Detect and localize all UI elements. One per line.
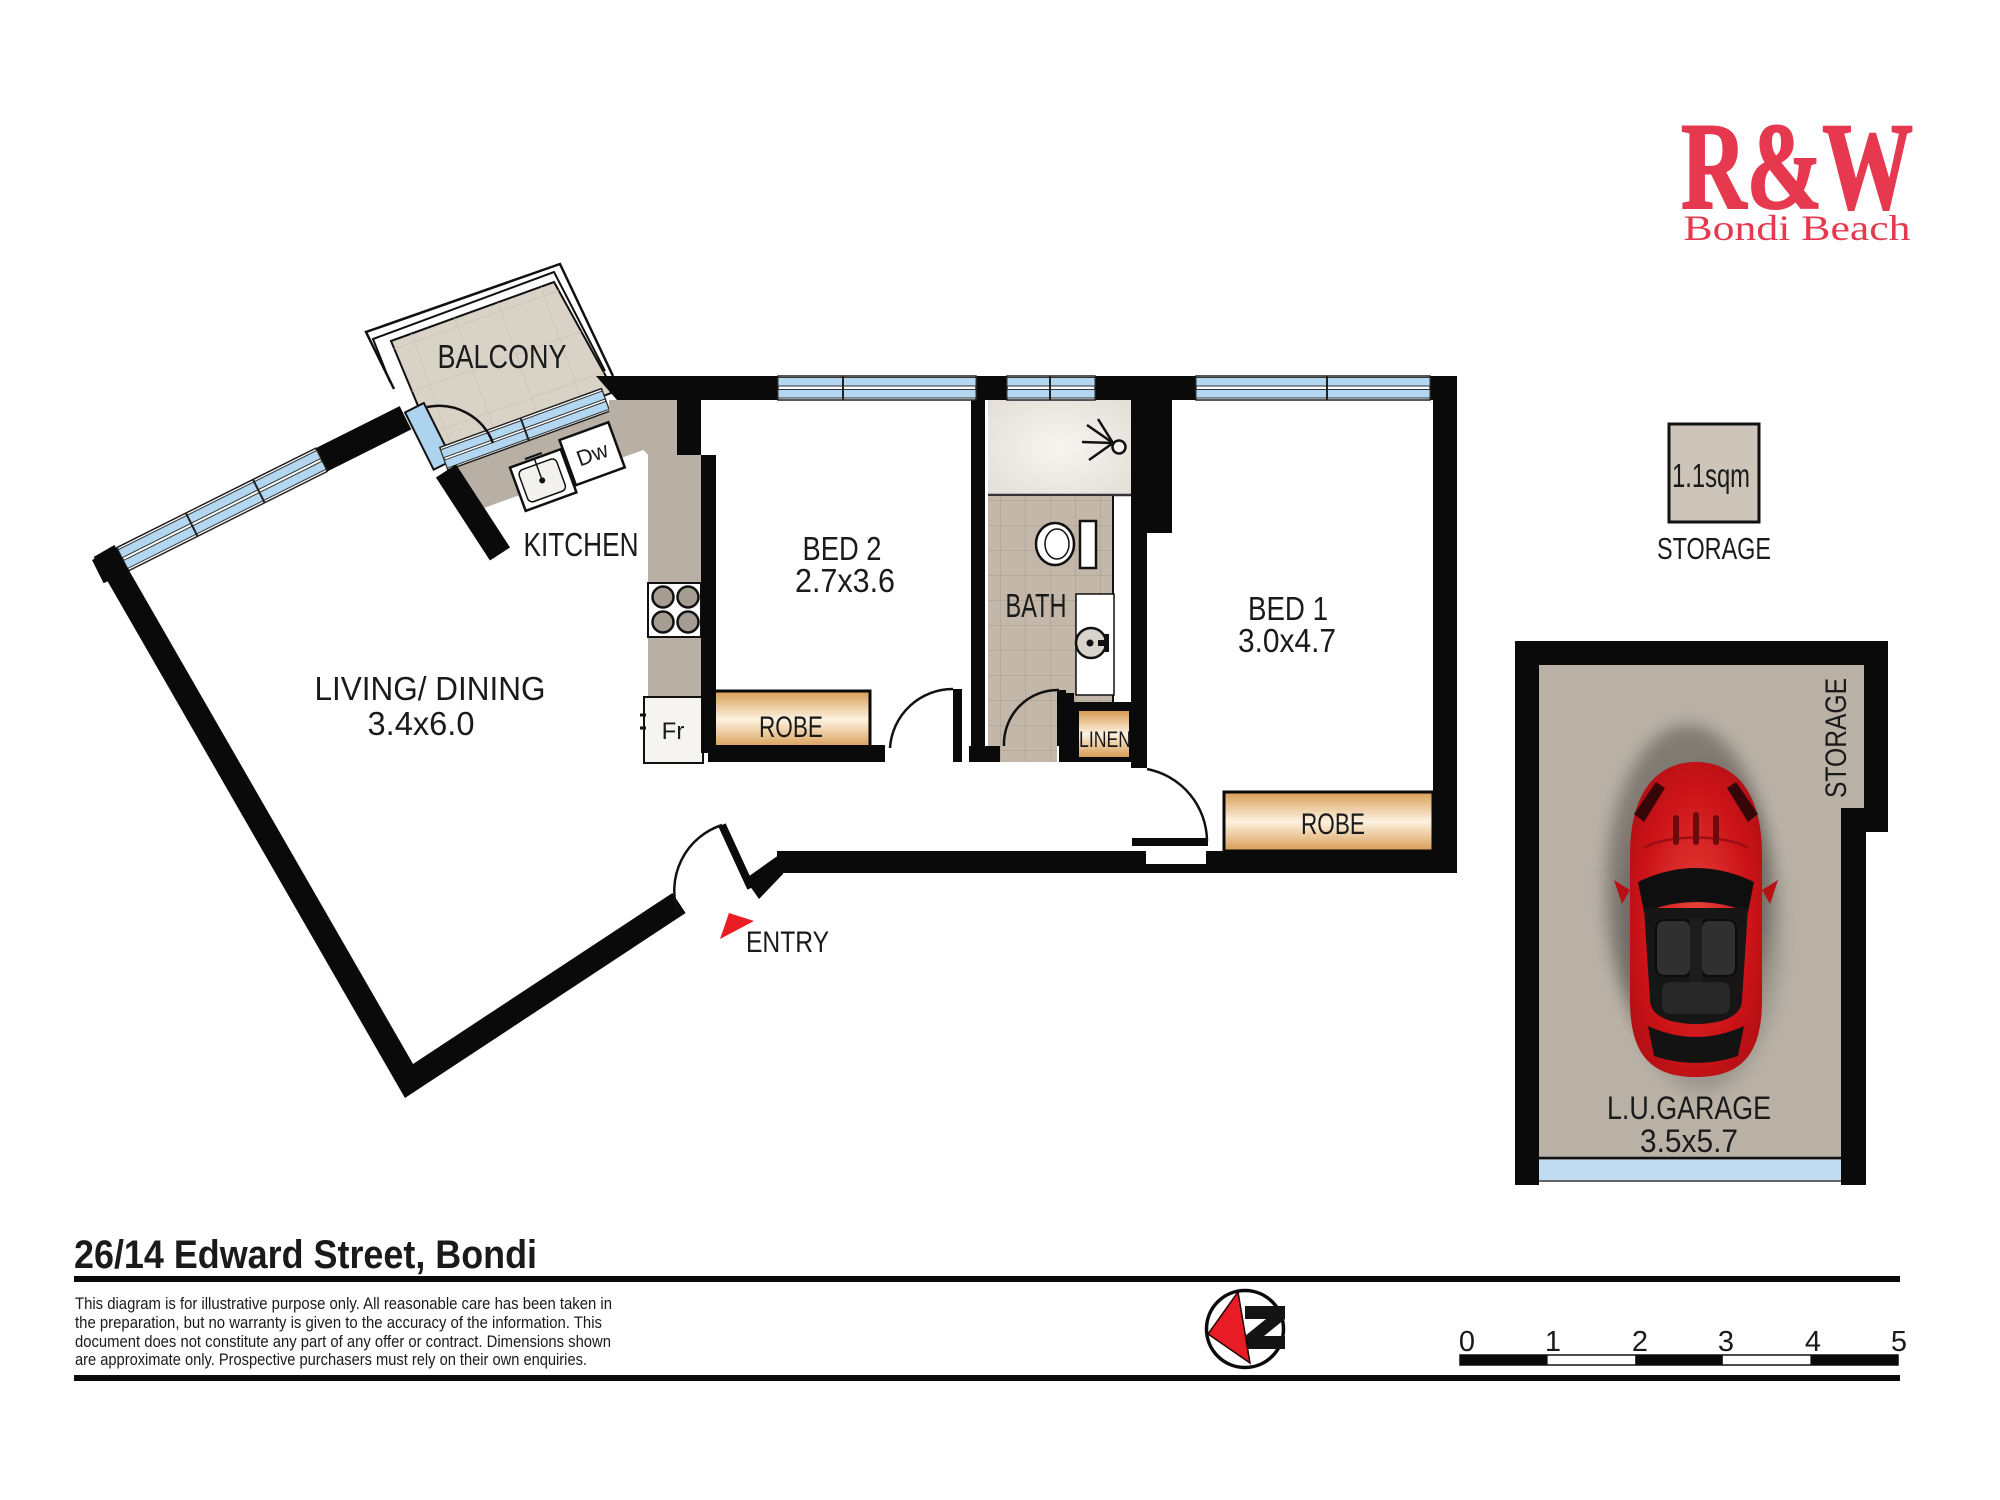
- svg-text:document does not constitute a: document does not constitute any part of…: [75, 1333, 611, 1351]
- svg-text:5: 5: [1891, 1326, 1907, 1358]
- svg-text:1: 1: [1545, 1326, 1561, 1358]
- svg-text:Bondi Beach: Bondi Beach: [1684, 208, 1911, 248]
- svg-text:0: 0: [1459, 1326, 1475, 1358]
- svg-text:3: 3: [1718, 1326, 1734, 1358]
- svg-text:ROBE: ROBE: [1301, 808, 1365, 841]
- svg-text:L.U.GARAGE: L.U.GARAGE: [1607, 1090, 1771, 1126]
- svg-text:STORAGE: STORAGE: [1657, 531, 1771, 566]
- svg-text:LINEN: LINEN: [1079, 727, 1131, 752]
- svg-text:2: 2: [1632, 1326, 1648, 1358]
- svg-text:ENTRY: ENTRY: [746, 926, 829, 959]
- svg-text:STORAGE: STORAGE: [1820, 678, 1853, 798]
- svg-text:KITCHEN: KITCHEN: [524, 526, 639, 563]
- svg-text:This diagram is for illustrati: This diagram is for illustrative purpose…: [75, 1295, 612, 1313]
- svg-text:BATH: BATH: [1006, 587, 1067, 624]
- svg-text:are approximate only. Prospect: are approximate only. Prospective purcha…: [75, 1351, 587, 1369]
- svg-text:BALCONY: BALCONY: [438, 338, 567, 375]
- svg-text:26/14 Edward Street, Bondi: 26/14 Edward Street, Bondi: [74, 1233, 537, 1277]
- svg-text:LIVING/ DINING: LIVING/ DINING: [315, 670, 546, 707]
- svg-text:ROBE: ROBE: [759, 711, 823, 744]
- svg-text:3.0x4.7: 3.0x4.7: [1238, 622, 1336, 659]
- svg-text:3.4x6.0: 3.4x6.0: [368, 705, 475, 742]
- svg-text:Fr: Fr: [662, 718, 685, 745]
- svg-text:the preparation, but no warran: the preparation, but no warranty is give…: [75, 1314, 602, 1332]
- svg-text:3.5x5.7: 3.5x5.7: [1640, 1123, 1738, 1159]
- svg-text:1.1sqm: 1.1sqm: [1672, 457, 1750, 494]
- svg-text:2.7x3.6: 2.7x3.6: [795, 562, 895, 599]
- svg-text:4: 4: [1805, 1326, 1821, 1358]
